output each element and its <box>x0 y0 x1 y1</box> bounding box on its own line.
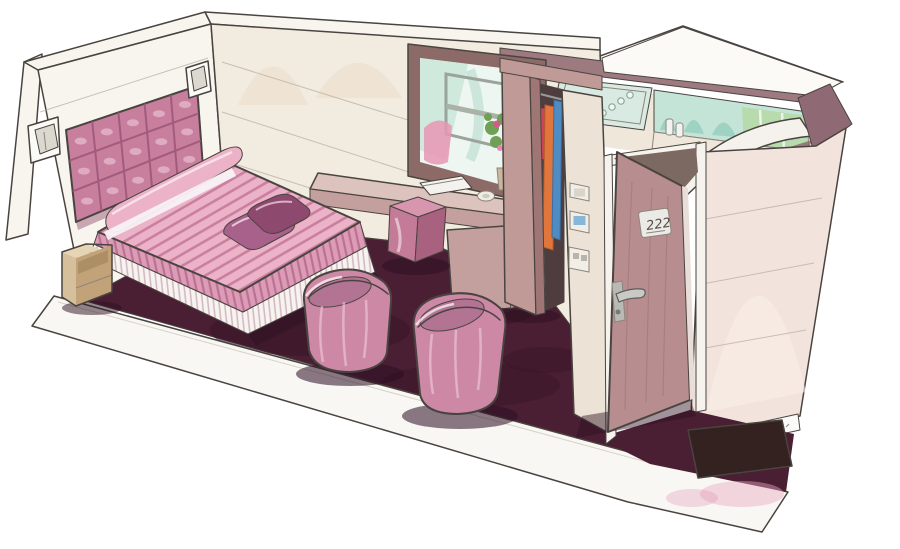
room-number-plate: 222 <box>638 208 672 238</box>
pink-marker-smudge <box>666 489 718 507</box>
hotel-room-sketch: 222 <box>0 0 900 549</box>
thermostat-display <box>574 216 586 225</box>
armchair-2 <box>402 293 518 429</box>
flower <box>497 145 503 151</box>
hanging-clothes-blue <box>552 100 562 240</box>
round-dish-center <box>482 194 490 198</box>
switch-panel <box>569 183 589 272</box>
door-jamb-right <box>696 142 706 412</box>
sconce-right <box>186 61 211 98</box>
socket-hole <box>573 253 579 259</box>
reflected-pink-chair <box>424 120 452 164</box>
switch-rocker <box>574 189 585 197</box>
sconce-left <box>28 117 60 163</box>
lock-cylinder <box>616 310 621 315</box>
socket-hole <box>581 255 587 261</box>
room-illustration: 222 <box>0 0 900 549</box>
flower <box>494 121 501 128</box>
ottoman-cube <box>382 197 450 275</box>
sconce-lamp-shade <box>191 66 207 91</box>
armchair-1 <box>296 270 404 386</box>
